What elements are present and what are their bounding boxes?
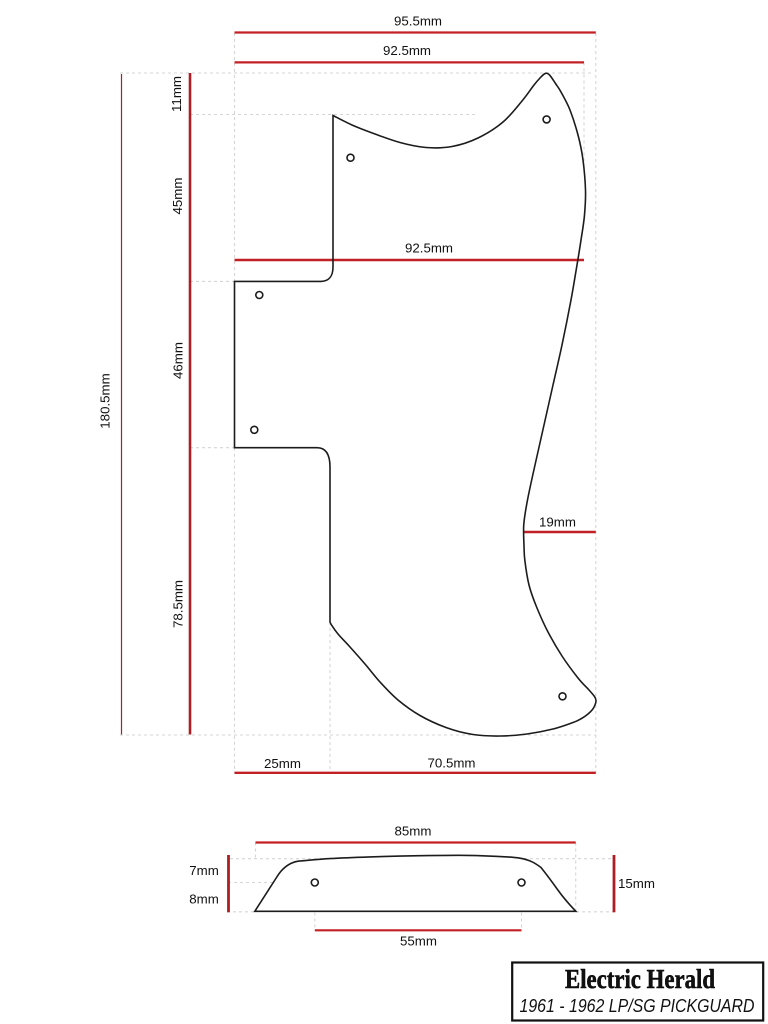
svg-text:95.5mm: 95.5mm — [394, 14, 442, 29]
svg-text:92.5mm: 92.5mm — [405, 241, 453, 256]
svg-text:70.5mm: 70.5mm — [427, 756, 475, 771]
svg-text:15mm: 15mm — [618, 876, 655, 891]
svg-text:85mm: 85mm — [395, 824, 432, 839]
svg-text:1961 - 1962 LP/SG PICKGUARD: 1961 - 1962 LP/SG PICKGUARD — [520, 995, 755, 1016]
svg-text:46mm: 46mm — [171, 342, 186, 379]
svg-text:45mm: 45mm — [170, 178, 185, 215]
svg-text:78.5mm: 78.5mm — [171, 580, 186, 628]
svg-text:180.5mm: 180.5mm — [98, 373, 113, 428]
svg-text:Electric Herald: Electric Herald — [565, 964, 715, 994]
svg-text:25mm: 25mm — [264, 756, 301, 771]
svg-text:11mm: 11mm — [169, 76, 184, 112]
svg-text:92.5mm: 92.5mm — [383, 43, 431, 58]
svg-text:8mm: 8mm — [189, 892, 219, 907]
svg-text:55mm: 55mm — [400, 934, 437, 949]
svg-text:19mm: 19mm — [539, 515, 576, 530]
svg-text:7mm: 7mm — [189, 863, 219, 878]
